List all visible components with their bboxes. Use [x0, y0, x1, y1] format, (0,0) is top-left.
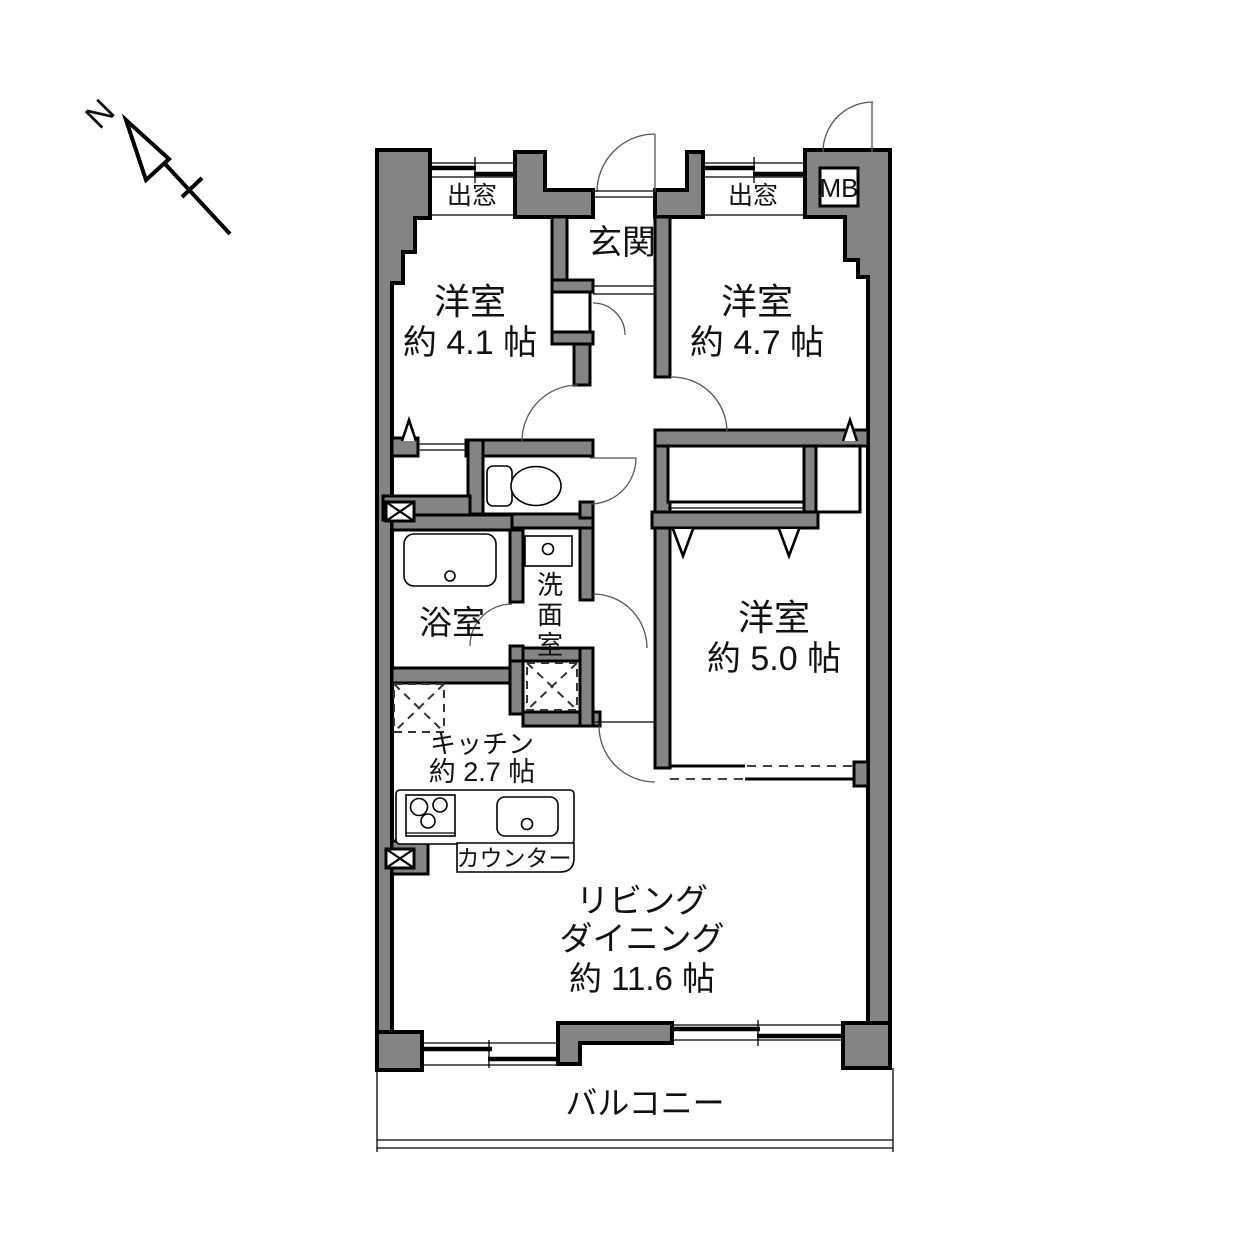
living-dining-name1: リビング — [576, 882, 708, 919]
stove-burner3 — [421, 814, 435, 828]
corridor-right-wall-top — [655, 217, 670, 377]
bifold-mark-bedroom50-right — [779, 529, 799, 556]
bottom-right-corner-block — [843, 1023, 890, 1068]
left-outer-wall — [377, 150, 430, 1032]
bay-window-right-label: 出窓 — [728, 182, 778, 210]
bath-label: 浴室 — [419, 604, 485, 641]
shoe-closet-door-arc — [593, 303, 625, 335]
stove-burner1 — [411, 799, 428, 816]
wall-above-shoe-closet — [552, 280, 593, 292]
bedroom41-door-arc — [522, 385, 578, 441]
toilet-top-wall — [466, 440, 593, 456]
wall-below-shoe-closet — [552, 332, 593, 344]
washroom-label-char3: 室 — [537, 630, 563, 660]
bedroom50-name: 洋室 — [738, 597, 810, 638]
pipe-space-lower — [386, 849, 414, 868]
living-dining-name2: ダイニング — [560, 920, 725, 957]
living-dining-size: 約 11.6 帖 — [569, 960, 715, 997]
stove-burner2 — [433, 798, 447, 812]
washroom-door-arc — [593, 594, 647, 648]
refrigerator-space — [394, 684, 444, 732]
bifold-mark-bedroom50-left — [673, 529, 693, 556]
bedroom41-size: 約 4.1 帖 — [403, 324, 537, 362]
meter-box-label: MB — [820, 173, 859, 203]
bedroom50-closet-left — [668, 446, 804, 502]
bath-washroom-wall-upper — [510, 530, 523, 602]
top-wall-left-of-entrance — [515, 152, 593, 217]
washroom-label-char1: 洗 — [537, 570, 563, 600]
compass-arrowhead-icon — [126, 120, 169, 180]
bedroom47-bottom-wall — [655, 430, 868, 446]
bathtub-drain — [445, 571, 455, 581]
bedroom47-name: 洋室 — [721, 281, 793, 322]
bottom-left-corner-block — [377, 1032, 422, 1070]
washer-space — [527, 663, 577, 710]
compass: N — [78, 92, 230, 234]
entrance-left-wall — [552, 217, 567, 282]
kitchen-sink-drain — [522, 819, 533, 830]
corridor-left-wall-lower — [580, 648, 593, 726]
toilet-door-arc — [590, 458, 636, 504]
counter-label: カウンター — [457, 845, 572, 871]
bedroom47-door-arc — [672, 377, 727, 432]
pipe-space-upper — [386, 502, 414, 521]
bedroom41-name: 洋室 — [434, 281, 506, 322]
bedroom41-door-pier — [574, 344, 590, 385]
washbasin-faucet — [543, 544, 554, 555]
toilet-bowl — [511, 467, 561, 506]
partition-right-pier — [854, 762, 868, 786]
corridor-left-wall-upper — [580, 528, 593, 600]
bedroom47-side-closet — [816, 446, 860, 512]
labels: 出窓 出窓 MB 玄関 洋室 約 4.1 帖 洋室 約 4.7 帖 洋室 約 5… — [403, 173, 859, 1121]
meter-box-door-arc — [823, 102, 873, 152]
kitchen-size: 約 2.7 帖 — [429, 757, 536, 787]
washroom-label-char2: 面 — [537, 600, 563, 630]
bedroom50-closet-bottom-wall — [652, 512, 818, 528]
entrance-label: 玄関 — [588, 224, 656, 262]
bedroom47-size: 約 4.7 帖 — [690, 324, 824, 362]
compass-north-label: N — [78, 92, 122, 136]
toilet-tank — [487, 466, 512, 506]
right-outer-wall-with-mb — [805, 150, 890, 1032]
floor-plan-page: N — [0, 0, 1252, 1252]
living-door-arc — [599, 726, 655, 782]
balcony-label: バルコニー — [565, 1085, 724, 1121]
ld-center-wall-block — [558, 1023, 672, 1064]
bay-window-left-label: 出窓 — [447, 182, 497, 210]
kitchen-name: キッチン — [430, 729, 534, 759]
laundry-niche-left-wall — [510, 661, 523, 714]
entrance-door-arc — [597, 134, 655, 192]
bedroom50-size: 約 5.0 帖 — [707, 640, 841, 678]
top-wall-right-of-entrance — [655, 152, 703, 217]
floor-plan-svg: N — [0, 0, 1252, 1252]
bath-bottom-wall — [392, 668, 523, 683]
shoe-closet — [552, 292, 590, 332]
bifold-mark-bedroom41 — [402, 420, 416, 441]
